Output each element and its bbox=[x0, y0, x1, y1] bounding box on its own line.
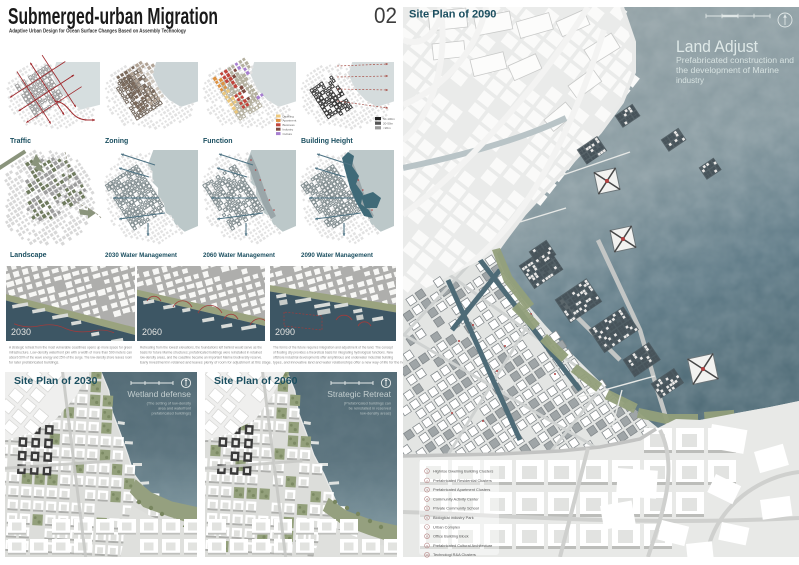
svg-text:Traffic: Traffic bbox=[10, 138, 31, 145]
svg-text:<20m: <20m bbox=[383, 126, 391, 130]
svg-text:(Prefabricated buildings can: (Prefabricated buildings can bbox=[344, 402, 391, 406]
svg-text:Function: Function bbox=[203, 138, 233, 145]
svg-text:Early investment in retained a: Early investment in retained and leaves … bbox=[140, 361, 272, 365]
svg-text:Business: Business bbox=[283, 123, 296, 127]
svg-text:types, and innovative land and: types, and innovative land and water rel… bbox=[273, 361, 410, 365]
svg-text:The forms of the future requir: The forms of the future requires integra… bbox=[273, 346, 393, 350]
svg-text:low-density areas, and the coa: low-density areas, and the coastline bec… bbox=[140, 356, 262, 360]
svg-text:Industry: Industry bbox=[283, 128, 294, 132]
svg-text:Site Plan of 2030: Site Plan of 2030 bbox=[14, 375, 98, 387]
svg-text:Zoning: Zoning bbox=[105, 138, 128, 145]
svg-text:basis for future Marine struct: basis for future Marine structures; pref… bbox=[140, 351, 262, 355]
svg-text:Dwelling: Dwelling bbox=[283, 114, 295, 118]
svg-text:area and waterfront: area and waterfront bbox=[158, 407, 192, 411]
svg-text:absorb 50% of the wave energy: absorb 50% of the wave energy and 25% of… bbox=[9, 356, 132, 360]
svg-text:A strategic retreat from the m: A strategic retreat from the most vulner… bbox=[9, 346, 132, 350]
svg-text:(The setting of low-density: (The setting of low-density bbox=[147, 402, 191, 406]
svg-text:2030: 2030 bbox=[11, 327, 31, 337]
svg-text:Retreating from the lowest ele: Retreating from the lowest elevations, t… bbox=[140, 346, 262, 350]
svg-text:Wetland defense: Wetland defense bbox=[127, 389, 191, 399]
svg-text:2060: 2060 bbox=[142, 327, 162, 337]
svg-text:2090 Water Management: 2090 Water Management bbox=[301, 252, 373, 259]
svg-text:Strategic Retreat: Strategic Retreat bbox=[327, 389, 391, 399]
svg-text:Culture: Culture bbox=[283, 132, 293, 136]
svg-text:Landscape: Landscape bbox=[10, 252, 47, 259]
svg-text:2090: 2090 bbox=[275, 327, 295, 337]
svg-text:infrastructure. Low-density wa: infrastructure. Low-density waterfront j… bbox=[9, 351, 132, 355]
svg-text:2060 Water Management: 2060 Water Management bbox=[203, 252, 275, 259]
svg-text:prefabricated buildings): prefabricated buildings) bbox=[152, 412, 192, 416]
svg-text:Building Height: Building Height bbox=[301, 138, 353, 145]
svg-text:Site Plan of 2060: Site Plan of 2060 bbox=[214, 375, 298, 387]
svg-text:50-100m: 50-100m bbox=[383, 117, 395, 121]
svg-text:offshore industrial developmen: offshore industrial developments offer a… bbox=[273, 356, 393, 360]
svg-text:be reinstalled in reserved: be reinstalled in reserved bbox=[349, 407, 391, 411]
svg-text:of floating city provides a th: of floating city provides a theoretical … bbox=[273, 351, 393, 355]
svg-text:02: 02 bbox=[374, 3, 397, 28]
svg-text:20-50m: 20-50m bbox=[383, 122, 394, 126]
svg-text:Submerged-urban Migration: Submerged-urban Migration bbox=[8, 3, 218, 29]
svg-text:low-density areas): low-density areas) bbox=[360, 412, 392, 416]
svg-text:Apartment: Apartment bbox=[283, 119, 297, 123]
svg-text:2030 Water Management: 2030 Water Management bbox=[105, 252, 177, 259]
svg-text:for later prefabricated buildi: for later prefabricated buildings. bbox=[9, 361, 59, 365]
svg-text:Adaptive Urban Design for Ocea: Adaptive Urban Design for Ocean Surface … bbox=[9, 29, 186, 35]
